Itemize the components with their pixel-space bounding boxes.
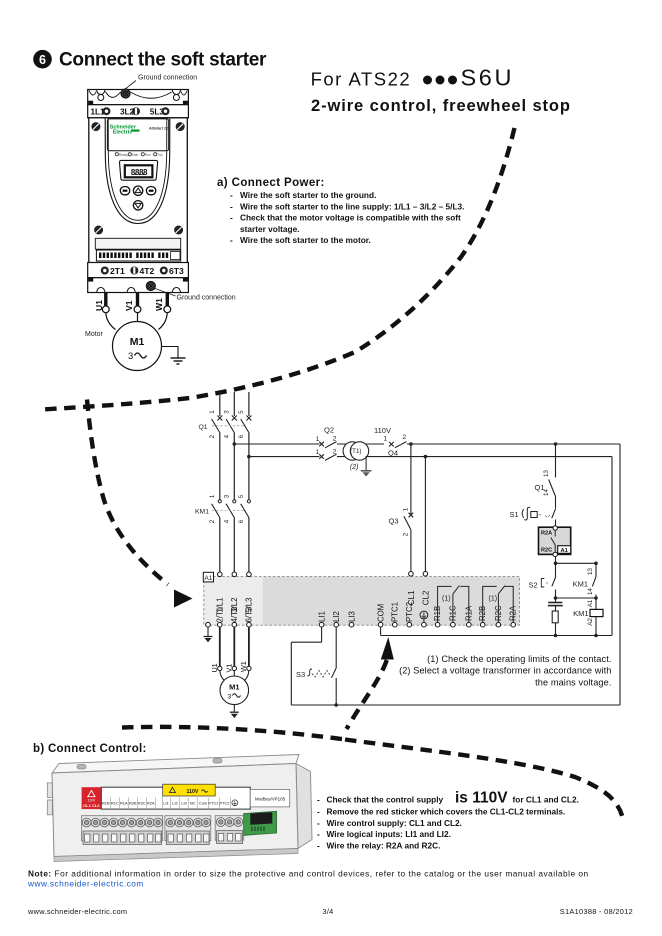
svg-text:2: 2 [333, 436, 337, 443]
svg-text:U1: U1 [210, 663, 219, 672]
svg-text:S2: S2 [529, 581, 538, 590]
svg-text:the mains voltage.: the mains voltage. [535, 678, 611, 688]
svg-text:LI3: LI3 [347, 611, 356, 622]
svg-text:R1C: R1C [111, 801, 119, 806]
svg-text:M1: M1 [130, 336, 145, 348]
svg-text:Ready: Ready [119, 153, 129, 157]
svg-text:Q2: Q2 [324, 426, 334, 435]
svg-text:(2) Select a voltage transform: (2) Select a voltage transformer in acco… [399, 666, 611, 676]
svg-text:4: 4 [224, 434, 231, 438]
svg-text:2-wire control, freewheel stop: 2-wire control, freewheel stop [311, 97, 571, 115]
svg-text:2: 2 [402, 532, 409, 536]
svg-text:3: 3 [224, 410, 231, 414]
svg-text:1: 1 [316, 449, 320, 456]
svg-text:LI3: LI3 [181, 801, 186, 806]
svg-text:3: 3 [128, 351, 133, 362]
svg-text:14: 14 [587, 588, 594, 595]
svg-text:www.schneider-electric.com: www.schneider-electric.com [27, 879, 144, 889]
svg-text:-: - [230, 201, 233, 211]
svg-text:6: 6 [238, 434, 245, 438]
svg-text:6: 6 [238, 519, 245, 523]
svg-text:3/4: 3/4 [322, 907, 333, 916]
svg-text:Wire the soft starter to the l: Wire the soft starter to the line supply… [240, 201, 464, 211]
svg-text:Check that the control supply: Check that the control supply [327, 795, 444, 805]
svg-text:V1: V1 [224, 664, 233, 673]
svg-text:Electric: Electric [113, 130, 132, 136]
svg-text:R1B: R1B [102, 801, 110, 806]
svg-text:Ground connection: Ground connection [138, 75, 197, 82]
svg-text:3: 3 [228, 694, 232, 701]
svg-text:Note: For additional informati: Note: For additional information in orde… [28, 869, 589, 879]
svg-text:is 110V: is 110V [455, 790, 508, 807]
svg-text:3: 3 [224, 494, 231, 498]
svg-text:U1: U1 [94, 300, 104, 311]
svg-text:Connect the soft starter: Connect the soft starter [59, 50, 267, 71]
svg-text:starter voltage.: starter voltage. [240, 224, 299, 234]
svg-text:(2): (2) [350, 464, 359, 471]
svg-text:6/T3: 6/T3 [245, 607, 254, 623]
svg-text:PTC1: PTC1 [209, 801, 219, 806]
svg-text:(1): (1) [489, 595, 498, 602]
svg-text:CL2: CL2 [422, 590, 431, 605]
svg-text:110V: 110V [88, 799, 96, 803]
svg-text:Start: Start [132, 153, 139, 157]
svg-text:PTC2: PTC2 [220, 801, 230, 806]
svg-text:A1: A1 [204, 575, 212, 582]
svg-text:110V: 110V [374, 426, 391, 435]
svg-text:R2B: R2B [129, 801, 137, 806]
svg-text:KM1: KM1 [573, 609, 588, 618]
svg-text:2/T1: 2/T1 [216, 607, 225, 623]
svg-text:R2A: R2A [541, 531, 552, 537]
svg-text:R2C: R2C [541, 548, 552, 554]
svg-text:A1: A1 [560, 548, 568, 554]
svg-text:4/T2: 4/T2 [230, 607, 239, 623]
svg-text:S6U: S6U [461, 65, 515, 91]
svg-text:W1: W1 [239, 661, 248, 672]
svg-text:4T2: 4T2 [140, 266, 155, 276]
svg-text:S1: S1 [510, 510, 519, 519]
svg-text:6: 6 [39, 53, 46, 67]
svg-text:Q1: Q1 [198, 424, 207, 431]
svg-text:2: 2 [333, 449, 337, 456]
svg-text:Q4: Q4 [388, 448, 398, 457]
svg-text:(1) Check the operating limits: (1) Check the operating limits of the co… [427, 654, 611, 664]
svg-text:Check that the motor voltage i: Check that the motor voltage is compatib… [240, 213, 461, 223]
svg-text:Trip: Trip [157, 153, 163, 157]
svg-text:A2: A2 [587, 618, 594, 626]
svg-text:2: 2 [402, 434, 406, 441]
svg-text:Altistart 22: Altistart 22 [149, 126, 168, 130]
svg-text:COM: COM [376, 604, 385, 622]
svg-text:PTC2: PTC2 [405, 602, 414, 622]
svg-text:Remove the red sticker which c: Remove the red sticker which covers the … [327, 806, 566, 816]
svg-text:R2A: R2A [147, 801, 155, 806]
svg-text:-: - [230, 190, 233, 200]
svg-text:Com: Com [199, 801, 207, 806]
svg-text:PTC1: PTC1 [391, 602, 400, 622]
svg-text:Ground connection: Ground connection [177, 295, 236, 302]
svg-text:W1: W1 [154, 298, 164, 311]
svg-text:(T1): (T1) [350, 448, 361, 455]
svg-text:4: 4 [224, 519, 231, 523]
svg-text:5: 5 [238, 494, 245, 498]
svg-text:LI2: LI2 [332, 611, 341, 622]
svg-text:5: 5 [238, 410, 245, 414]
svg-text:1: 1 [316, 436, 320, 443]
svg-text:LI2: LI2 [172, 801, 177, 806]
svg-text:-: - [317, 795, 320, 805]
svg-text:Run: Run [145, 153, 151, 157]
svg-text:13: 13 [543, 470, 550, 477]
svg-text:S3: S3 [296, 670, 305, 679]
svg-text:-: - [230, 235, 233, 245]
svg-text:Q3: Q3 [388, 517, 398, 526]
svg-text:1: 1 [402, 507, 409, 511]
svg-text:NC: NC [190, 801, 196, 806]
svg-text:2: 2 [209, 434, 216, 438]
svg-text:for CL1 and CL2.: for CL1 and CL2. [513, 795, 579, 805]
svg-text:Modbus/VP105: Modbus/VP105 [255, 796, 286, 801]
svg-text:www.schneider-electric.com: www.schneider-electric.com [27, 907, 127, 916]
svg-text:2: 2 [209, 519, 216, 523]
svg-text:LI1: LI1 [163, 801, 168, 806]
svg-text:-: - [230, 213, 233, 223]
svg-text:(1): (1) [442, 595, 451, 602]
svg-text:KM1: KM1 [195, 509, 209, 516]
svg-text:Wire control supply: CL1 and C: Wire control supply: CL1 and CL2. [327, 818, 462, 828]
svg-text:a) Connect Power:: a) Connect Power: [217, 177, 325, 189]
svg-text:-: - [317, 829, 320, 839]
svg-text:13: 13 [587, 568, 594, 575]
svg-text:Wire the soft starter to the m: Wire the soft starter to the motor. [240, 235, 371, 245]
svg-text:8.8.8.8: 8.8.8.8 [131, 168, 148, 177]
svg-text:Wire logical inputs: LI1 and L: Wire logical inputs: LI1 and LI2. [327, 829, 451, 839]
svg-text:Wire the soft starter to the g: Wire the soft starter to the ground. [240, 190, 376, 200]
svg-text:1: 1 [209, 410, 216, 414]
svg-text:For ATS22: For ATS22 [311, 69, 412, 90]
svg-text:Motor: Motor [85, 331, 104, 338]
svg-text:A1: A1 [587, 599, 594, 607]
svg-text:R2C: R2C [138, 801, 146, 806]
svg-text:KM1: KM1 [573, 580, 588, 589]
svg-text:M1: M1 [229, 683, 239, 692]
svg-text:1: 1 [383, 436, 387, 443]
svg-text:-: - [317, 840, 320, 850]
svg-text:2T1: 2T1 [110, 266, 125, 276]
svg-text:V1: V1 [124, 300, 134, 311]
svg-text:Wire the relay: R2A and R2C.: Wire the relay: R2A and R2C. [327, 840, 441, 850]
svg-text:110V: 110V [187, 789, 199, 795]
svg-text:6T3: 6T3 [169, 266, 184, 276]
svg-text:S1A10388 - 08/2012: S1A10388 - 08/2012 [560, 907, 633, 916]
svg-text:CL1 CL2: CL1 CL2 [83, 803, 100, 808]
svg-text:-: - [317, 806, 320, 816]
svg-text:14: 14 [543, 489, 550, 496]
svg-text:-: - [317, 818, 320, 828]
svg-text:LI1: LI1 [317, 611, 326, 622]
svg-text:b) Connect Control:: b) Connect Control: [33, 743, 147, 755]
svg-text:R1A: R1A [120, 801, 128, 806]
svg-text:1: 1 [209, 494, 216, 498]
